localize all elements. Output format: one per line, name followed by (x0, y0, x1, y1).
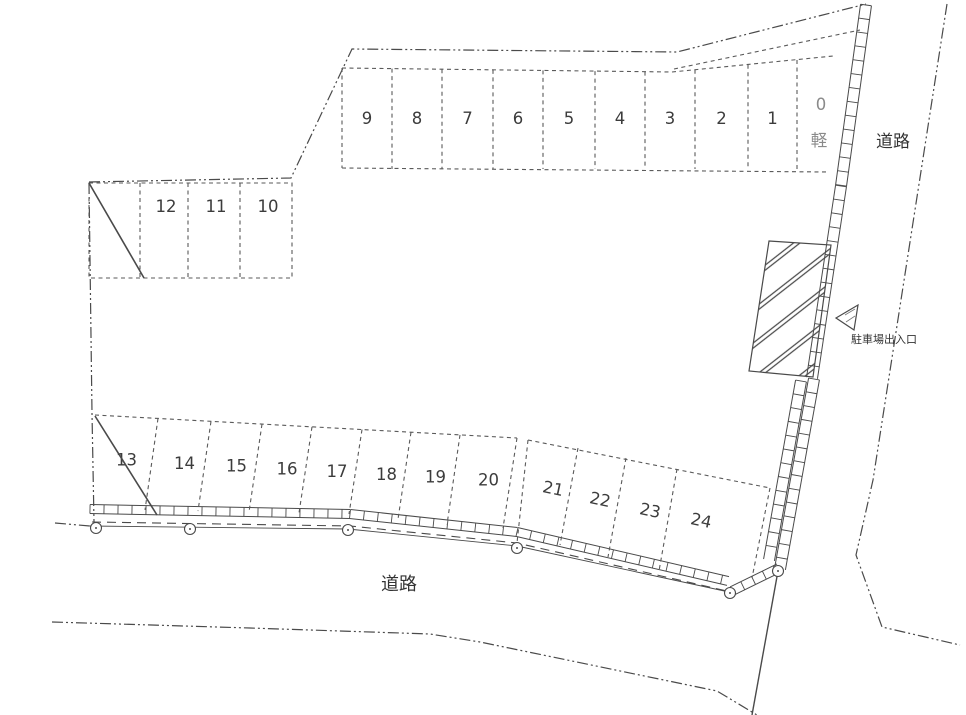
parcel-converging-edge (674, 30, 860, 69)
site-plan-drawing: 9876543210軽12111013141516171819202122232… (0, 0, 966, 715)
boundary-fence-extension (55, 523, 90, 526)
parking-space-20-label: 20 (478, 470, 499, 489)
parking-space-9-label: 9 (362, 109, 373, 128)
parking-space-15-label: 15 (226, 457, 247, 476)
parking-divider (447, 435, 460, 525)
wall-rung (806, 392, 817, 394)
wall-rung (827, 241, 838, 243)
parking-space-22-label: 22 (588, 488, 612, 511)
parking-block-left: 121110 (89, 183, 292, 278)
block-top-edge (95, 415, 517, 438)
parking-space-14-label: 14 (174, 454, 195, 473)
fence-post-center (95, 527, 97, 529)
wall-rung (859, 18, 870, 20)
wall-rung (419, 517, 420, 526)
wall-rung (571, 540, 573, 549)
wall-rung (786, 435, 797, 437)
wall-rung (851, 74, 862, 76)
parking-space-11-label: 11 (206, 197, 227, 216)
boundary-top (89, 4, 866, 182)
parking-divider (198, 421, 211, 511)
wall-rung (762, 571, 766, 579)
parking-space-1-label: 1 (767, 109, 778, 128)
wall-rung (377, 513, 378, 522)
wall-rung (776, 490, 787, 492)
wall-rung (489, 525, 490, 534)
parking-block-bottom-left: 1314151617181920 (95, 415, 517, 528)
dead-corner-diagonal (95, 416, 157, 515)
wall-rung (833, 199, 844, 201)
block-right-edge (752, 488, 770, 578)
wall-rung (829, 227, 840, 229)
parking-space-16-label: 16 (277, 459, 298, 478)
parking-space-kei-type-label: 軽 (811, 131, 828, 150)
boundary-right (856, 4, 960, 645)
wall-rung (766, 545, 777, 547)
boundary-road-lower (52, 622, 757, 715)
parking-divider (560, 448, 578, 545)
wall-rung (793, 394, 804, 396)
wall-rail (90, 505, 350, 510)
parking-space-0-label: 0 (816, 95, 827, 114)
wall-rung (433, 519, 434, 528)
parking-space-3-label: 3 (665, 109, 676, 128)
parking-space-23-label: 23 (638, 499, 662, 522)
wall-rung (391, 514, 392, 523)
parking-divider (299, 427, 312, 513)
wall-rung (721, 575, 723, 584)
wall-rung (791, 408, 802, 410)
wall-rail (775, 378, 809, 568)
parking-divider (659, 469, 677, 571)
wall-rung (461, 522, 462, 531)
wall-rung (791, 474, 802, 476)
wall-rung (611, 550, 613, 559)
block-right-edge (503, 438, 517, 528)
parking-divider (349, 430, 362, 514)
wall-rung (838, 171, 849, 173)
wall-rung (786, 502, 797, 504)
wall-rung (847, 101, 858, 103)
fence-post-center (777, 570, 779, 572)
wall-rung (784, 516, 795, 518)
fence-post-center (516, 547, 518, 549)
parking-space-24-label: 24 (689, 509, 713, 532)
wall-rung (475, 523, 476, 532)
wall-rung (781, 463, 792, 465)
wall-rung (796, 447, 807, 449)
boundary-bottom-solid (752, 571, 778, 715)
generated-plan-elements: 9876543210軽12111013141516171819202122232… (89, 4, 871, 598)
wall-rung (853, 60, 864, 62)
wall-rung (777, 557, 788, 559)
wall-rung (845, 115, 856, 117)
right-wall-lower-inner (764, 380, 807, 561)
parking-divider (398, 432, 411, 519)
wall-rung (652, 559, 654, 568)
parking-space-12-label: 12 (156, 197, 177, 216)
wall-rung (693, 569, 695, 578)
parking-divider (145, 418, 158, 510)
wall-rung (831, 213, 842, 215)
wall-rung (584, 543, 586, 552)
wall-rung (530, 531, 532, 540)
wall-rung (843, 129, 854, 131)
wall-rung (557, 537, 559, 546)
wall-rung (779, 543, 790, 545)
parking-space-6-label: 6 (513, 109, 524, 128)
parking-space-7-label: 7 (462, 109, 473, 128)
wall-rail (846, 6, 871, 187)
parking-lot-plan: 9876543210軽12111013141516171819202122232… (0, 0, 966, 715)
wall-rung (598, 547, 600, 556)
parking-space-2-label: 2 (716, 109, 727, 128)
entrance-marker: 駐車場出入口 (836, 305, 917, 346)
right-wall-lower-outer (775, 378, 820, 570)
road-label-bottom: 道路 (381, 574, 417, 595)
wall-rung (849, 87, 860, 89)
entrance-label: 駐車場出入口 (851, 332, 917, 346)
fence-post-center (729, 592, 731, 594)
wall-rung (363, 511, 364, 520)
wall-rung (789, 488, 800, 490)
road-label-right: 道路 (876, 132, 910, 152)
wall-rung (788, 421, 799, 423)
parking-block-top: 9876543210軽 (342, 30, 860, 172)
boundary-left (89, 183, 94, 522)
wall-rung (841, 143, 852, 145)
wall-rung (839, 157, 850, 159)
parking-space-17-label: 17 (327, 462, 348, 481)
block-top-edge (342, 56, 833, 72)
wall-rung (350, 510, 351, 519)
wall-rung (741, 582, 745, 590)
fence-post-center (189, 528, 191, 530)
wall-rung (773, 504, 784, 506)
wall-rung (405, 516, 406, 525)
wall-rung (768, 532, 779, 534)
parking-space-10-label: 10 (258, 197, 279, 216)
wall-rail (90, 513, 350, 518)
wall-rung (804, 406, 815, 408)
dead-corner-diagonal (89, 183, 144, 278)
parking-space-5-label: 5 (564, 109, 575, 128)
wall-rung (796, 380, 807, 382)
parking-space-19-label: 19 (425, 468, 446, 487)
wall-rung (680, 566, 682, 575)
parking-space-21-label: 21 (541, 477, 565, 500)
wall-rung (666, 562, 668, 571)
wall-rail (516, 536, 727, 585)
block-bottom-edge (342, 168, 828, 172)
wall-rung (707, 572, 709, 581)
wall-rung (543, 534, 545, 543)
wall-rung (783, 449, 794, 451)
wall-rung (778, 477, 789, 479)
wall-rung (639, 556, 641, 565)
wall-rail (730, 564, 777, 587)
wall-rung (855, 46, 866, 48)
wall-rung (781, 530, 792, 532)
wall-rung (794, 461, 805, 463)
wall-rung (799, 433, 810, 435)
wall-rung (857, 32, 868, 34)
wall-rung (801, 419, 812, 421)
parking-space-18-label: 18 (376, 465, 397, 484)
fence-post-center (347, 529, 349, 531)
entrance-hatched-area (749, 241, 831, 377)
parking-space-4-label: 4 (615, 109, 626, 128)
parking-divider (249, 424, 262, 512)
wall-rung (771, 518, 782, 520)
parking-block-bottom-right: 21222324 (517, 440, 770, 578)
parking-space-8-label: 8 (412, 109, 423, 128)
parking-divider (608, 458, 626, 557)
wall-rung (625, 553, 627, 562)
